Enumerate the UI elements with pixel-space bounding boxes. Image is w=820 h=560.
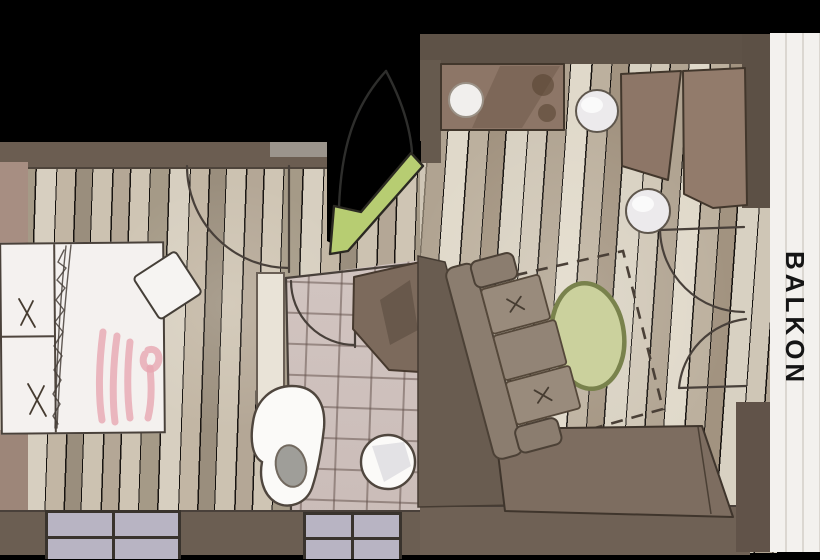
chair-highlight [632, 196, 654, 212]
pillow-x-mark [28, 384, 46, 416]
balcony-door-arc [660, 230, 744, 312]
sketch-overlay [0, 0, 820, 560]
bedroom-door-arc [187, 166, 289, 268]
pink-sketch-stroke [128, 342, 130, 418]
bathroom-door-arc [291, 281, 355, 345]
pink-sketch-stroke [99, 332, 103, 420]
stool [449, 83, 483, 117]
chair-highlight [581, 97, 603, 113]
bed-cushion [133, 251, 202, 320]
balcony-door-leaf [679, 386, 746, 388]
bed-cushion-rect [133, 251, 202, 320]
entry-door-swing-arc [386, 71, 412, 152]
corner-cabinet-panel [621, 71, 681, 180]
sideboard-decor [532, 74, 554, 96]
pink-sketch-stroke [113, 336, 117, 422]
floorplan-canvas: BALKON [0, 0, 820, 560]
pillow-x-mark [19, 299, 35, 327]
corner-cabinet-panel [683, 68, 747, 208]
sideboard-decor [538, 104, 556, 122]
duvet-fold-zigzag [53, 250, 66, 424]
balcony-door-arc [679, 319, 746, 388]
pink-sketch-stroke [148, 368, 151, 418]
balcony-door-leaf [660, 227, 744, 230]
